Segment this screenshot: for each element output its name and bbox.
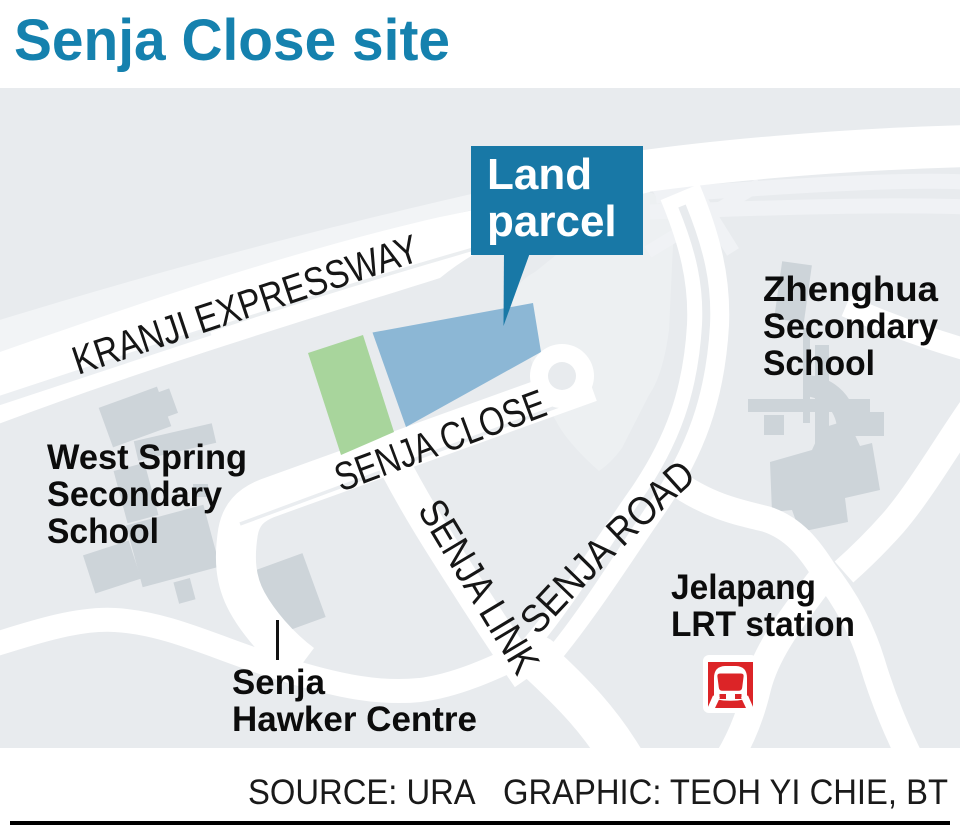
svg-text:School: School — [47, 512, 159, 551]
svg-text:Land: Land — [487, 150, 592, 199]
svg-text:LRT station: LRT station — [671, 605, 855, 644]
svg-text:SOURCE: URA GRAPHIC: TEOH YI: SOURCE: URA GRAPHIC: TEOH YI CHIE, BT — [248, 773, 948, 812]
svg-text:Senja Close site: Senja Close site — [14, 8, 450, 73]
svg-text:Zhenghua: Zhenghua — [763, 270, 939, 309]
svg-text:Secondary: Secondary — [47, 475, 223, 514]
svg-text:West Spring: West Spring — [47, 438, 247, 477]
svg-text:School: School — [763, 344, 875, 383]
svg-text:parcel: parcel — [487, 197, 617, 246]
svg-text:Hawker Centre: Hawker Centre — [232, 700, 477, 739]
svg-text:Secondary: Secondary — [763, 307, 939, 346]
svg-text:Jelapang: Jelapang — [671, 568, 816, 607]
svg-text:Senja: Senja — [232, 663, 326, 702]
